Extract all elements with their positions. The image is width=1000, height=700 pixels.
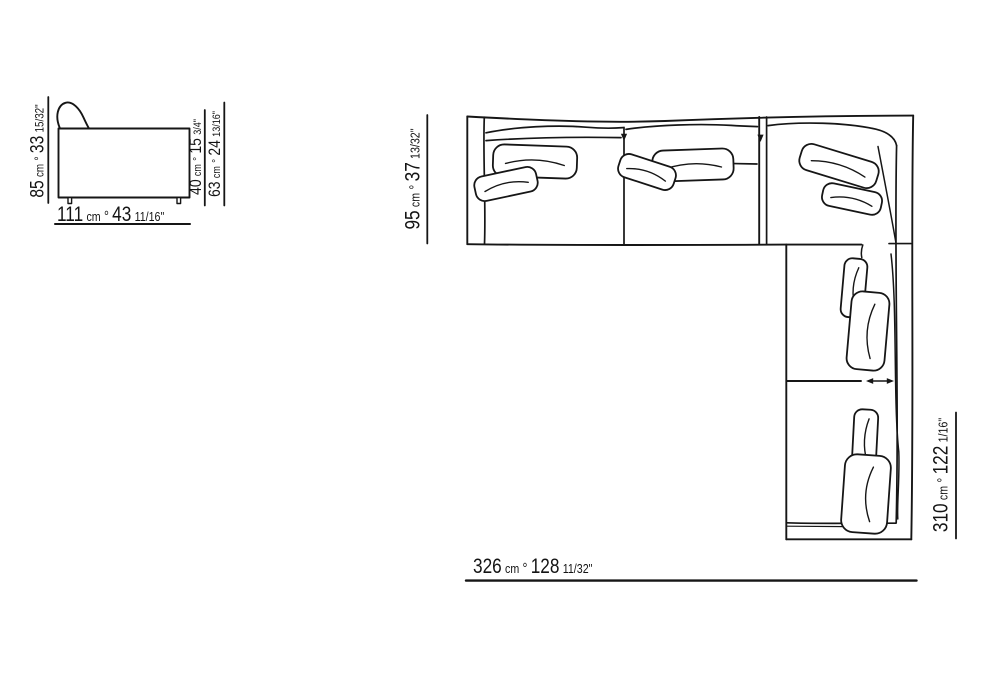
dim-unit: cm	[409, 193, 422, 207]
dim-value-inches: 128	[531, 556, 560, 577]
dim-value-cm: 95	[403, 210, 424, 229]
plan-view	[427, 115, 956, 581]
dim-label-elevation-arm-height: 63cm°2413/16"	[206, 111, 224, 197]
dim-unit: cm	[505, 562, 519, 575]
dim-value-inches: 122	[931, 446, 952, 475]
scatter-cushions	[473, 141, 892, 534]
seam-arrow-right-icon	[887, 378, 894, 384]
dim-value-cm: 326	[473, 556, 502, 577]
dim-separator: °	[408, 185, 423, 190]
dim-value-cm: 40	[187, 179, 204, 195]
dim-fraction: 15/32"	[33, 104, 45, 132]
dim-label-elevation-height: 85cm°3315/32"	[28, 104, 47, 197]
dim-separator: °	[104, 209, 109, 224]
dim-fraction: 3/4"	[193, 119, 204, 135]
dim-unit: cm	[212, 166, 223, 178]
scatter-cushion	[797, 141, 881, 190]
technical-drawing-canvas: 85cm°3315/32" 40cm°153/4" 63cm°2413/16" …	[0, 0, 1000, 700]
dim-unit: cm	[193, 164, 204, 176]
dim-fraction: 1/16"	[937, 418, 950, 443]
dim-label-plan-total-width: 326cm°12811/32"	[473, 556, 592, 577]
dim-fraction: 11/16"	[135, 210, 165, 223]
dim-label-plan-depth: 95cm°3713/32"	[403, 128, 424, 229]
dim-separator: °	[523, 561, 528, 576]
seam-arrow-down-icon	[621, 134, 627, 141]
dim-unit: cm	[86, 210, 100, 223]
scatter-cushion	[820, 182, 883, 217]
sofa-foot	[177, 198, 181, 204]
sofa-body-outline	[59, 129, 190, 198]
dim-value-cm: 310	[931, 503, 952, 532]
back-cushion	[57, 102, 89, 128]
dim-fraction: 13/32"	[409, 128, 422, 158]
dim-separator: °	[32, 156, 45, 160]
dim-separator: °	[191, 157, 203, 161]
dim-separator: °	[210, 159, 222, 163]
dim-value-inches: 15	[187, 138, 204, 154]
dim-label-plan-side-length: 310cm°1221/16"	[931, 418, 952, 532]
dim-fraction: 13/16"	[212, 111, 223, 137]
dim-value-cm: 63	[206, 181, 223, 197]
dim-label-elevation-seat-height: 40cm°153/4"	[187, 119, 205, 195]
seam-arrow-left-icon	[866, 378, 873, 384]
scatter-cushion	[846, 290, 891, 371]
dim-label-elevation-width: 111cm°4311/16"	[57, 204, 164, 225]
dim-value-cm: 111	[57, 204, 83, 225]
dim-value-inches: 24	[206, 140, 223, 156]
dim-unit: cm	[33, 164, 45, 177]
drawing-linework	[0, 0, 1000, 700]
dim-value-inches: 37	[403, 162, 424, 181]
dim-separator: °	[936, 478, 951, 483]
dim-value-inches: 33	[28, 136, 47, 153]
dim-fraction: 11/32"	[563, 562, 593, 575]
dim-value-cm: 85	[28, 180, 47, 197]
scatter-cushion	[840, 453, 891, 534]
scatter-cushion	[473, 165, 540, 203]
dim-unit: cm	[937, 486, 950, 500]
dim-value-inches: 43	[112, 204, 131, 225]
